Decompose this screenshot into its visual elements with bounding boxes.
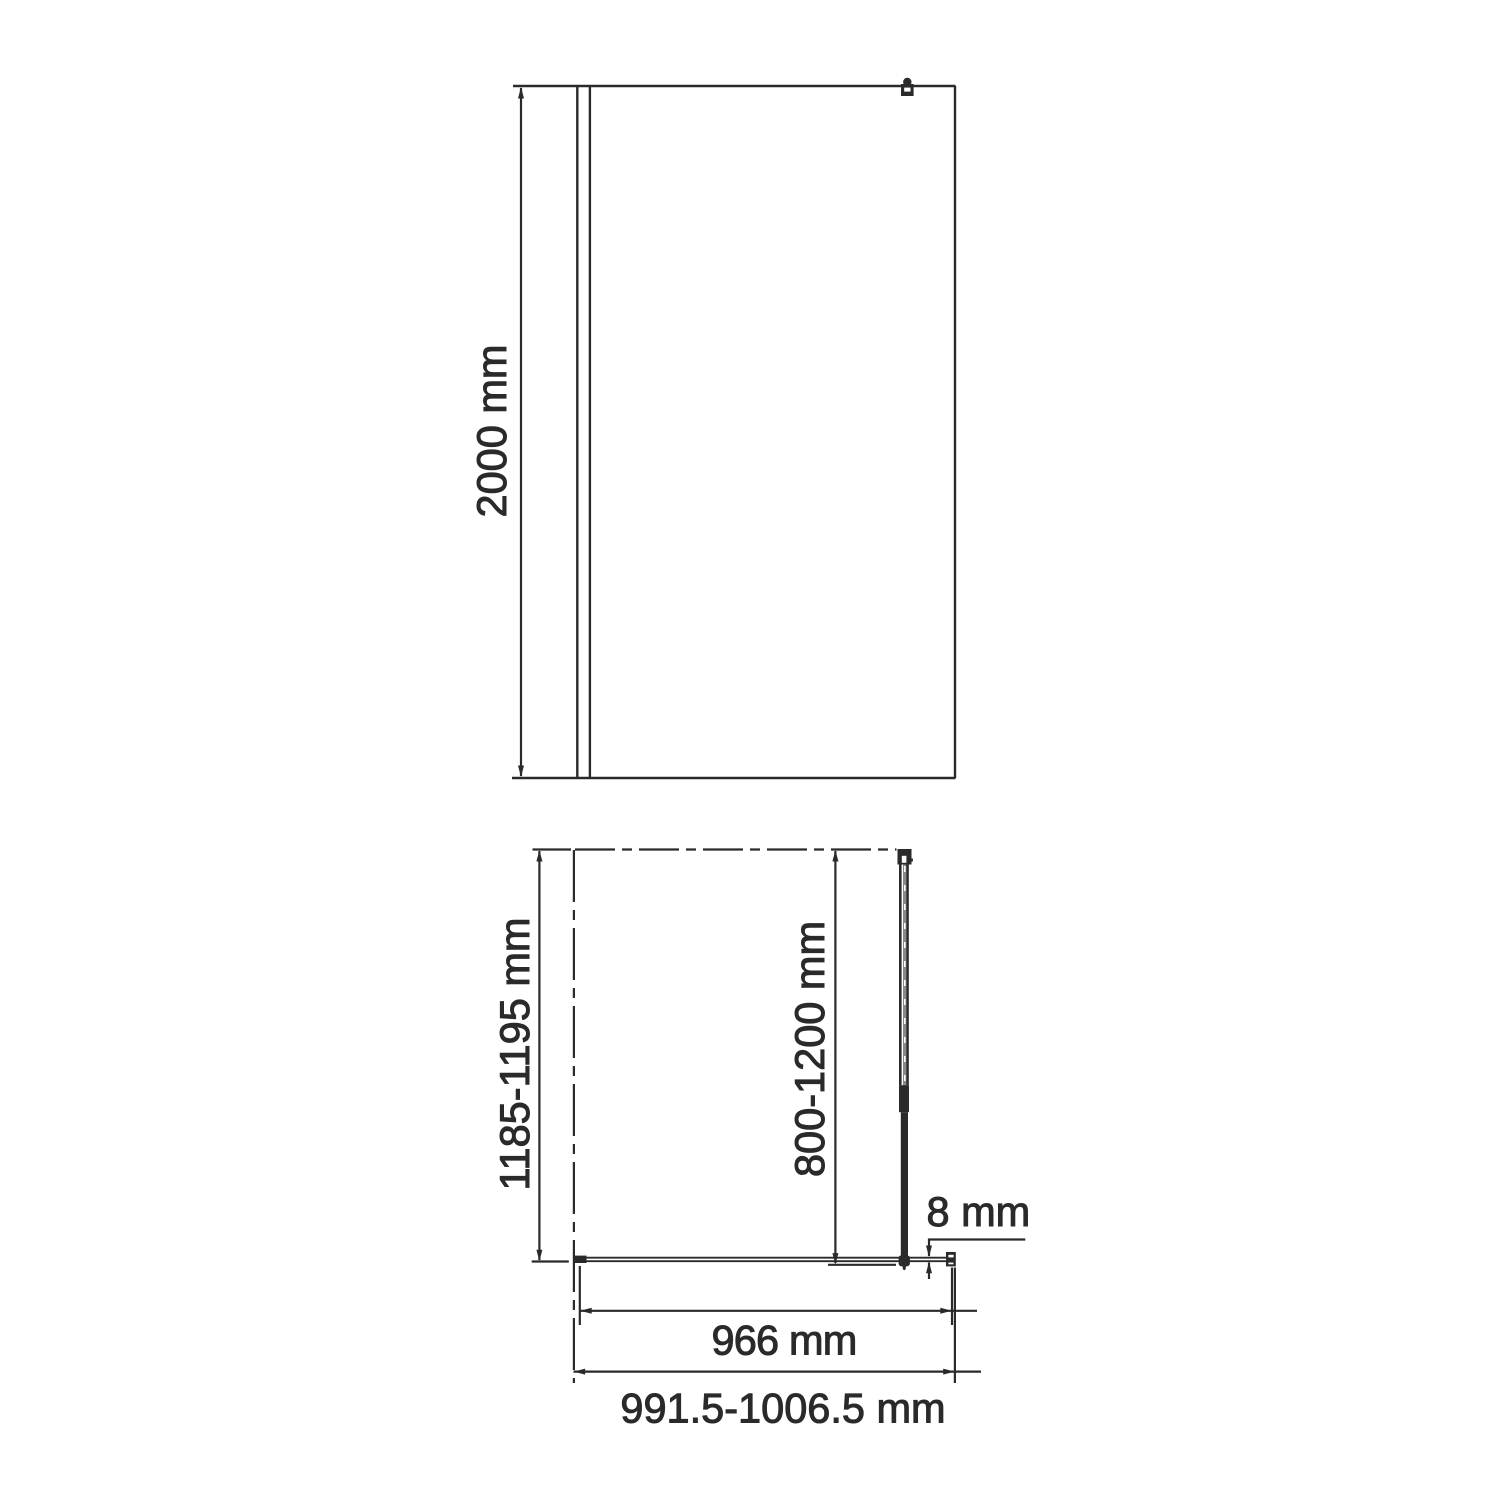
svg-text:991.5-1006.5 mm: 991.5-1006.5 mm [620, 1385, 945, 1432]
svg-text:1185-1195 mm: 1185-1195 mm [491, 918, 538, 1191]
svg-text:8 mm: 8 mm [927, 1188, 1031, 1235]
svg-text:966 mm: 966 mm [711, 1317, 856, 1364]
svg-text:2000 mm: 2000 mm [468, 345, 515, 518]
svg-text:800-1200 mm: 800-1200 mm [786, 921, 833, 1177]
